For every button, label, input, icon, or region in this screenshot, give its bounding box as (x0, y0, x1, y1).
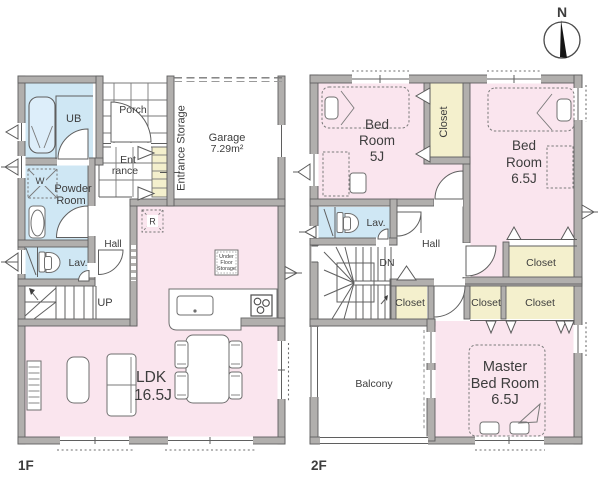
svg-text:Hall: Hall (104, 239, 121, 250)
svg-text:Closet: Closet (526, 257, 556, 269)
svg-text:7.29m²: 7.29m² (211, 143, 244, 155)
svg-text:6.5J: 6.5J (511, 171, 537, 186)
svg-text:Closet: Closet (395, 297, 425, 309)
svg-text:Lav.: Lav. (366, 217, 385, 229)
svg-text:Bed: Bed (365, 117, 389, 132)
svg-text:DN: DN (379, 257, 394, 269)
svg-text:Porch: Porch (119, 104, 147, 116)
svg-text:1F: 1F (18, 458, 34, 473)
svg-text:Hall: Hall (422, 238, 440, 250)
svg-text:Room: Room (56, 195, 85, 207)
svg-text:rance: rance (112, 165, 138, 177)
svg-text:5J: 5J (370, 149, 384, 164)
svg-text:Storage: Storage (217, 266, 236, 272)
svg-text:Lav.: Lav. (68, 257, 87, 269)
svg-text:R: R (149, 217, 156, 227)
svg-text:2F: 2F (311, 458, 327, 473)
svg-text:UB: UB (66, 113, 81, 125)
svg-text:W: W (36, 176, 45, 187)
svg-text:Powder: Powder (54, 183, 92, 195)
svg-text:Bed: Bed (512, 138, 536, 153)
svg-text:Closet: Closet (438, 106, 450, 137)
svg-text:Bed Room: Bed Room (471, 376, 540, 392)
svg-text:Balcony: Balcony (355, 378, 393, 390)
svg-text:UP: UP (97, 297, 112, 309)
svg-text:Closet: Closet (525, 297, 555, 309)
svg-text:Room: Room (359, 133, 395, 148)
svg-text:LDK: LDK (136, 369, 167, 386)
svg-text:N: N (557, 4, 567, 20)
svg-text:Entrance Storage: Entrance Storage (176, 105, 188, 191)
svg-text:Master: Master (483, 359, 527, 375)
svg-text:6.5J: 6.5J (491, 392, 518, 408)
svg-text:Room: Room (506, 155, 542, 170)
svg-text:16.5J: 16.5J (134, 387, 172, 404)
svg-text:Closet: Closet (471, 297, 501, 309)
